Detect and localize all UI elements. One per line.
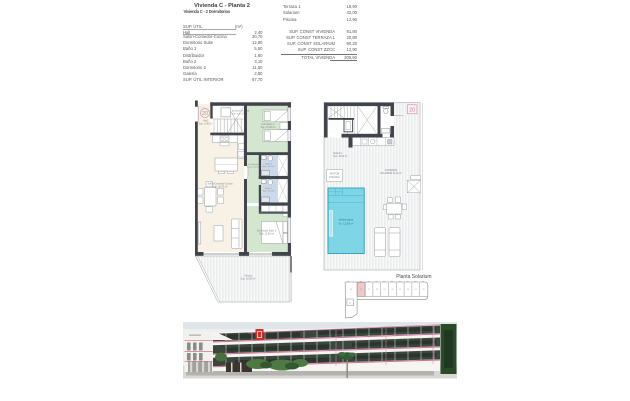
- svg-text:SUP 2,65 m²: SUP 2,65 m²: [232, 112, 244, 115]
- svg-text:Sup. 11,50 m²: Sup. 11,50 m²: [261, 126, 276, 129]
- svg-text:Sup. 2,40 m²: Sup. 2,40 m²: [199, 123, 213, 126]
- svg-text:Sup. 3,10 m²: Sup. 3,10 m²: [263, 190, 275, 193]
- svg-text:20: 20: [409, 108, 415, 114]
- svg-text:Sup. 42,00 m²: Sup. 42,00 m²: [333, 155, 348, 158]
- svg-text:Sup. 12,90 m²: Sup. 12,90 m²: [259, 233, 274, 236]
- svg-text:Sup. 30,70 m²: Sup. 30,70 m²: [212, 186, 227, 189]
- svg-text:MOTOR: MOTOR: [330, 172, 340, 176]
- svg-text:Baño 1: Baño 1: [265, 163, 272, 166]
- svg-text:COMEDOR: COMEDOR: [385, 170, 397, 172]
- svg-text:Distribuidor: Distribuidor: [248, 163, 259, 166]
- svg-text:So. 12,90 m²: So. 12,90 m²: [339, 222, 354, 226]
- svg-text:20: 20: [202, 111, 208, 117]
- svg-text:PISCINA: PISCINA: [329, 175, 340, 179]
- svg-text:Sup. 5,50 m²: Sup. 5,50 m²: [263, 165, 275, 168]
- svg-text:lámina agua: lámina agua: [339, 218, 354, 222]
- svg-text:Solarium: Solarium: [333, 152, 342, 155]
- svg-text:Sup. 18,90 m²: Sup. 18,90 m²: [240, 278, 255, 281]
- svg-text:ACCESO PLANTA: ACCESO PLANTA: [232, 109, 250, 112]
- svg-text:SOLARIUM 42,00 m²: SOLARIUM 42,00 m²: [380, 172, 402, 175]
- svg-text:Sup. 1,60 m²: Sup. 1,60 m²: [248, 166, 260, 169]
- svg-text:Baño 2: Baño 2: [265, 187, 272, 190]
